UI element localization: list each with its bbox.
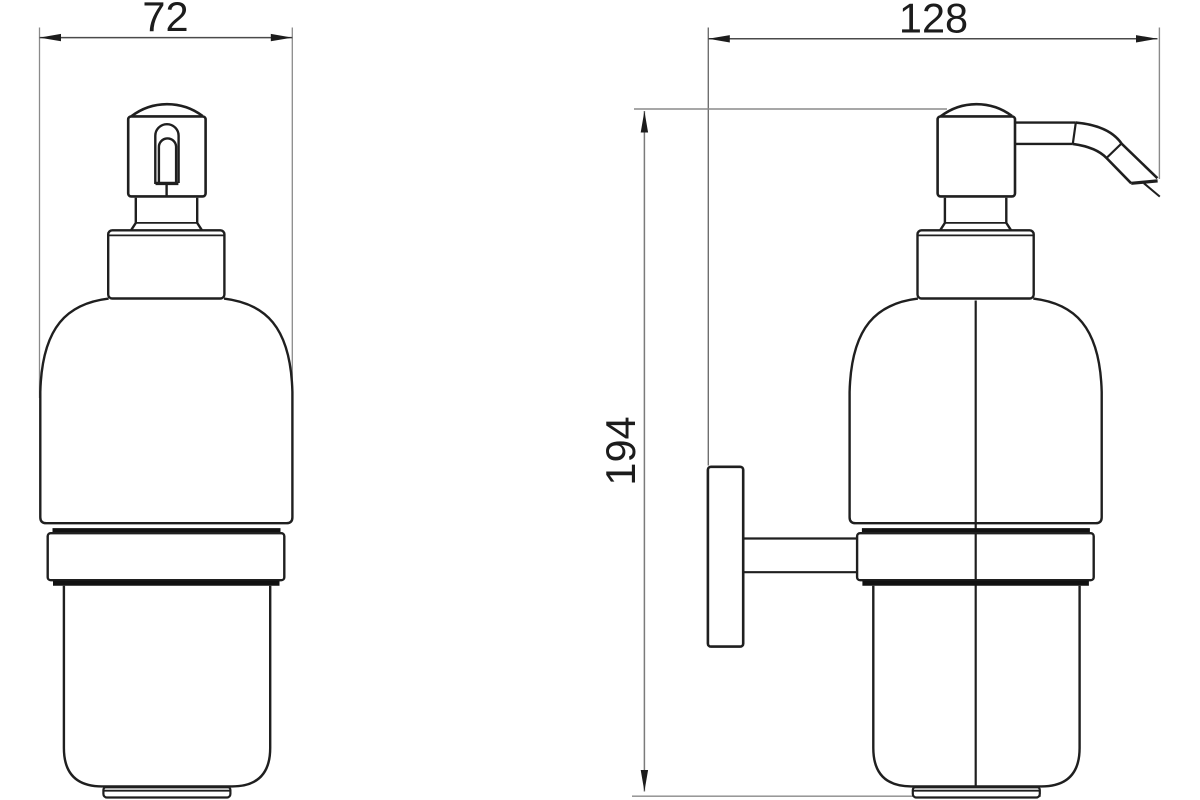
svg-text:128: 128 <box>899 0 968 42</box>
svg-text:194: 194 <box>597 416 644 485</box>
svg-text:72: 72 <box>142 0 188 40</box>
